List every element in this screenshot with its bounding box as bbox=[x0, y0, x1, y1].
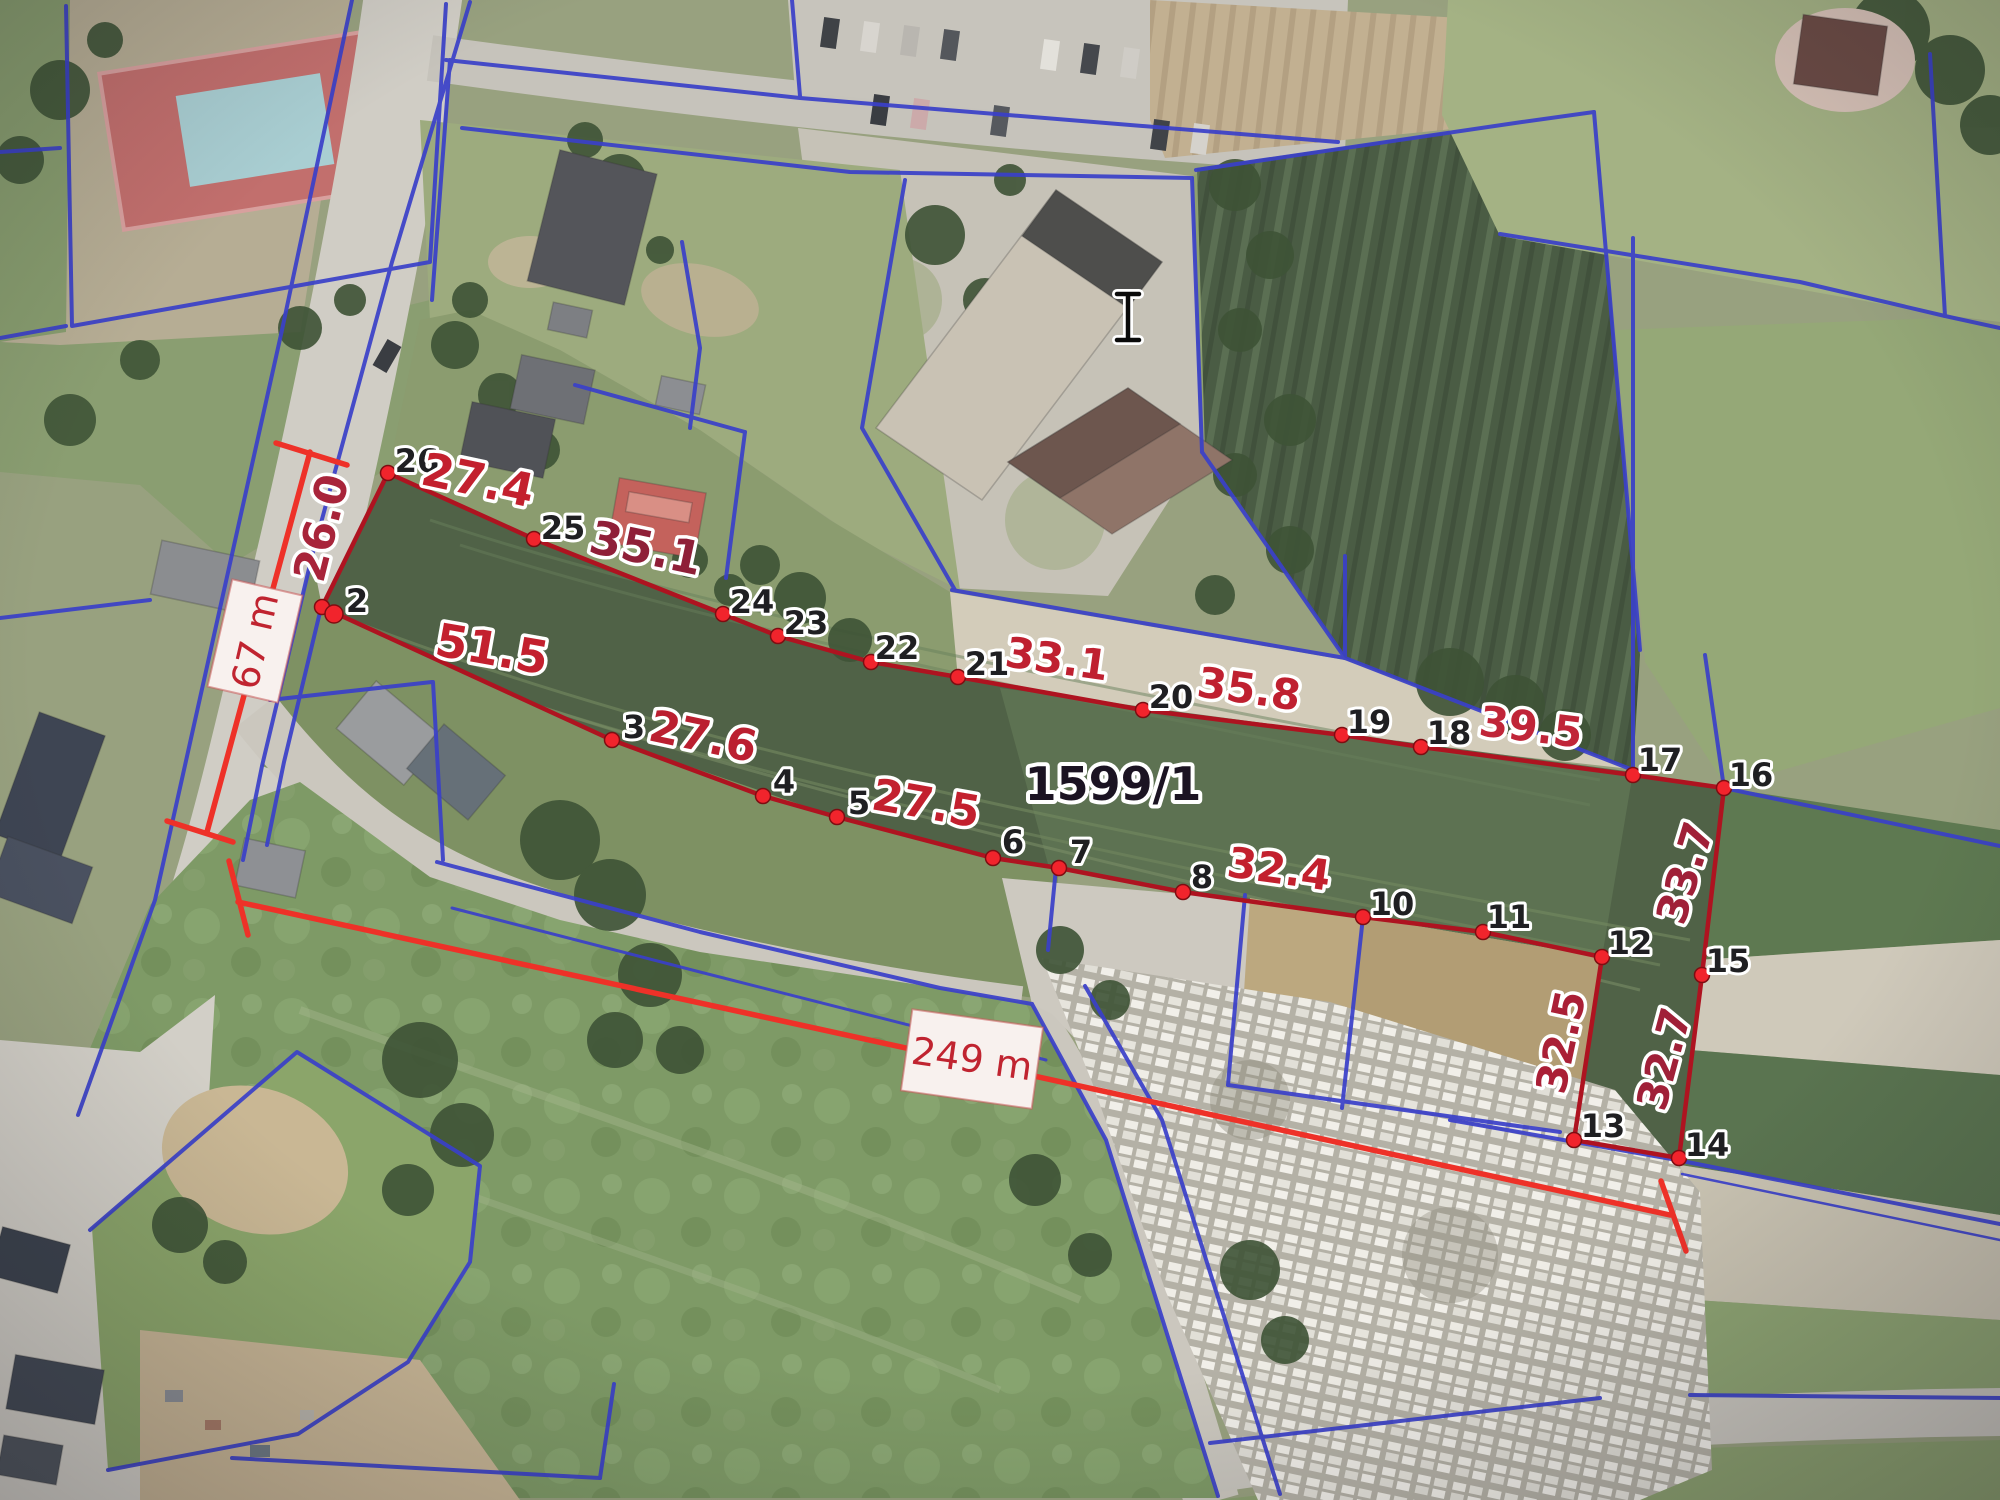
vertex-label-24: 24 bbox=[730, 583, 775, 621]
house bbox=[1794, 14, 1888, 95]
vertex-label-18: 18 bbox=[1427, 714, 1472, 752]
vertex-label-11: 11 bbox=[1487, 898, 1532, 936]
vertex-label-14: 14 bbox=[1685, 1126, 1730, 1164]
vertex-label-20: 20 bbox=[1149, 678, 1194, 716]
vertex-label-5: 5 bbox=[848, 784, 870, 822]
vertex-dot-extra bbox=[325, 605, 343, 623]
vertex-label-16: 16 bbox=[1729, 756, 1774, 794]
vertex-dot-25 bbox=[527, 532, 542, 547]
vertex-label-19: 19 bbox=[1347, 703, 1392, 741]
vertex-label-6: 6 bbox=[1002, 823, 1024, 861]
vertex-dot-24 bbox=[716, 607, 731, 622]
vertex-label-8: 8 bbox=[1191, 858, 1213, 896]
vertex-label-4: 4 bbox=[773, 763, 795, 801]
vertex-label-25: 25 bbox=[541, 509, 586, 547]
parcel-number-label: 1599/1 bbox=[1025, 757, 1202, 811]
aerial-map-canvas[interactable]: 67 m249 m2623456781011121314151617181920… bbox=[0, 0, 2000, 1500]
vertex-dot-7 bbox=[1052, 861, 1067, 876]
vertex-label-22: 22 bbox=[875, 629, 920, 667]
vertex-dot-5 bbox=[830, 810, 845, 825]
vertex-dot-13 bbox=[1567, 1133, 1582, 1148]
vertex-label-21: 21 bbox=[965, 645, 1010, 683]
vertex-dot-8 bbox=[1176, 885, 1191, 900]
vertex-label-10: 10 bbox=[1370, 885, 1415, 923]
vertex-label-7: 7 bbox=[1070, 833, 1092, 871]
vertex-dot-10 bbox=[1356, 910, 1371, 925]
vertex-label-17: 17 bbox=[1638, 741, 1683, 779]
vertex-dot-26 bbox=[381, 466, 396, 481]
vertex-dot-4 bbox=[756, 789, 771, 804]
map-viewport[interactable]: 67 m249 m2623456781011121314151617181920… bbox=[0, 0, 2000, 1500]
vertex-dot-3 bbox=[605, 733, 620, 748]
vertex-label-2: 2 bbox=[346, 582, 368, 620]
vertex-dot-21 bbox=[951, 670, 966, 685]
aerial-basemap bbox=[0, 0, 2000, 1500]
vertex-label-13: 13 bbox=[1581, 1107, 1626, 1145]
vertex-label-15: 15 bbox=[1706, 942, 1751, 980]
vertex-label-3: 3 bbox=[623, 708, 645, 746]
vertex-label-12: 12 bbox=[1608, 924, 1653, 962]
vertex-label-23: 23 bbox=[784, 604, 829, 642]
vertex-dot-6 bbox=[986, 851, 1001, 866]
